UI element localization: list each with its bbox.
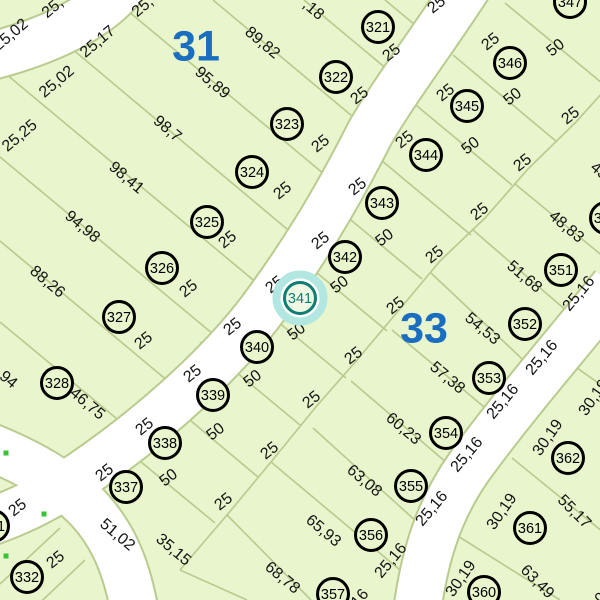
parcel-marker[interactable]: 342 xyxy=(330,242,361,273)
parcel-number: 344 xyxy=(414,148,438,164)
parcel-number: 327 xyxy=(107,310,131,326)
parcel-number: 357 xyxy=(321,587,345,600)
parcel-marker[interactable]: 325 xyxy=(192,207,223,238)
parcel-marker[interactable]: 354 xyxy=(431,418,462,449)
block-number: 33 xyxy=(400,304,448,352)
parcel-marker[interactable]: 326 xyxy=(147,253,178,284)
parcel-marker[interactable]: 352 xyxy=(510,309,541,340)
parcel-marker[interactable]: 361 xyxy=(515,513,546,544)
parcel-marker[interactable]: 332 xyxy=(12,562,43,593)
parcel-number: 356 xyxy=(359,528,383,544)
parcel-marker[interactable]: 328 xyxy=(42,368,73,399)
parcel-number: 328 xyxy=(45,376,69,392)
parcel-marker[interactable]: 323 xyxy=(272,109,303,140)
parcel-number: 345 xyxy=(455,99,479,115)
parcel-marker[interactable]: 340 xyxy=(242,332,273,363)
parcel-number: 354 xyxy=(434,426,458,442)
parcel-number: 339 xyxy=(201,388,225,404)
parcel-number: 340 xyxy=(245,340,269,356)
cadastral-map[interactable]: 25,25,0225,25,1725,0225,25,1889,8295,899… xyxy=(0,0,600,600)
parcel-number: 323 xyxy=(275,117,299,133)
vertex-dot xyxy=(4,554,9,559)
parcel-marker[interactable]: 346 xyxy=(495,48,526,79)
parcel-number: 321 xyxy=(366,20,390,36)
parcel-marker[interactable]: 338 xyxy=(150,428,181,459)
parcel-marker[interactable]: 322 xyxy=(321,62,352,93)
map-canvas[interactable]: 25,25,0225,25,1725,0225,25,1889,8295,899… xyxy=(0,0,600,600)
parcel-marker[interactable]: 343 xyxy=(367,188,398,219)
parcel-marker[interactable]: 357 xyxy=(318,579,349,600)
parcel-marker[interactable]: 356 xyxy=(356,520,387,551)
parcel-marker[interactable]: 362 xyxy=(553,443,584,474)
parcel-number: 322 xyxy=(324,70,348,86)
parcel-marker[interactable]: 345 xyxy=(452,91,483,122)
parcel-marker[interactable]: 337 xyxy=(111,472,142,503)
parcel-number: 332 xyxy=(15,570,39,586)
vertex-dot xyxy=(4,451,9,456)
parcel-marker-selected[interactable]: 341 xyxy=(277,275,324,322)
vertex-dot xyxy=(42,512,47,517)
parcel-number: 324 xyxy=(240,165,264,181)
parcel-number: 325 xyxy=(195,215,219,231)
parcel-number: 338 xyxy=(153,436,177,452)
parcel-marker[interactable]: 324 xyxy=(237,157,268,188)
parcel-marker[interactable]: 344 xyxy=(411,140,442,171)
parcel-marker[interactable]: 353 xyxy=(474,363,505,394)
parcel-marker[interactable]: 360 xyxy=(469,577,500,600)
parcel-number: 353 xyxy=(477,371,501,387)
parcel-number: 331 xyxy=(0,519,5,535)
parcel-number: 343 xyxy=(370,196,394,212)
parcel-marker[interactable]: 321 xyxy=(363,12,394,43)
parcel-number: 337 xyxy=(114,480,138,496)
parcel-number: 351 xyxy=(549,263,573,279)
parcel-marker[interactable]: 355 xyxy=(396,471,427,502)
parcel-number: 360 xyxy=(472,585,496,600)
parcel-marker[interactable]: 347 xyxy=(555,0,586,18)
parcel-number: 342 xyxy=(333,250,357,266)
parcel-number: 326 xyxy=(150,261,174,277)
block-number: 31 xyxy=(172,22,220,70)
parcel-number: 361 xyxy=(518,521,542,537)
parcel-number: 341 xyxy=(288,291,312,307)
parcel-marker[interactable]: 327 xyxy=(104,302,135,333)
parcel-marker[interactable]: 339 xyxy=(198,380,229,411)
parcel-number: 355 xyxy=(399,479,423,495)
parcel-number: 362 xyxy=(556,451,580,467)
parcel-number: 350 xyxy=(594,211,600,227)
parcel-number: 352 xyxy=(513,317,537,333)
parcel-number: 347 xyxy=(558,0,582,11)
parcel-marker[interactable]: 351 xyxy=(546,255,577,286)
parcel-number: 346 xyxy=(498,56,522,72)
